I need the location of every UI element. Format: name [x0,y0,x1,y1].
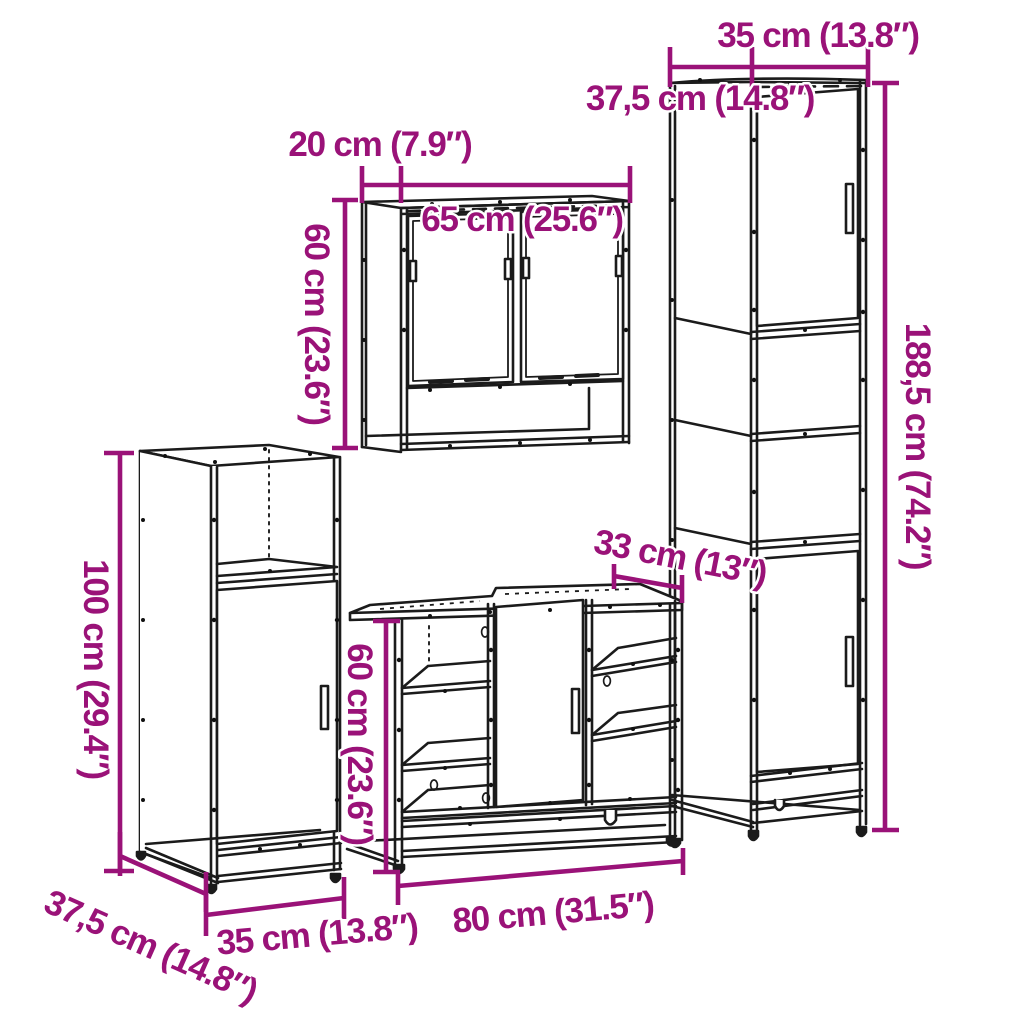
svg-text:188,5 cm (74.2″): 188,5 cm (74.2″) [898,323,937,570]
svg-text:100 cm (29.4″): 100 cm (29.4″) [76,559,115,779]
svg-text:65 cm (25.6″): 65 cm (25.6″) [421,200,623,239]
svg-text:20 cm (7.9″): 20 cm (7.9″) [288,125,471,164]
svg-text:60 cm (23.6″): 60 cm (23.6″) [297,223,336,425]
svg-text:60 cm (23.6″): 60 cm (23.6″) [340,643,379,845]
svg-text:35 cm (13.8″): 35 cm (13.8″) [717,16,919,55]
svg-text:37,5 cm (14.8″): 37,5 cm (14.8″) [586,79,814,118]
